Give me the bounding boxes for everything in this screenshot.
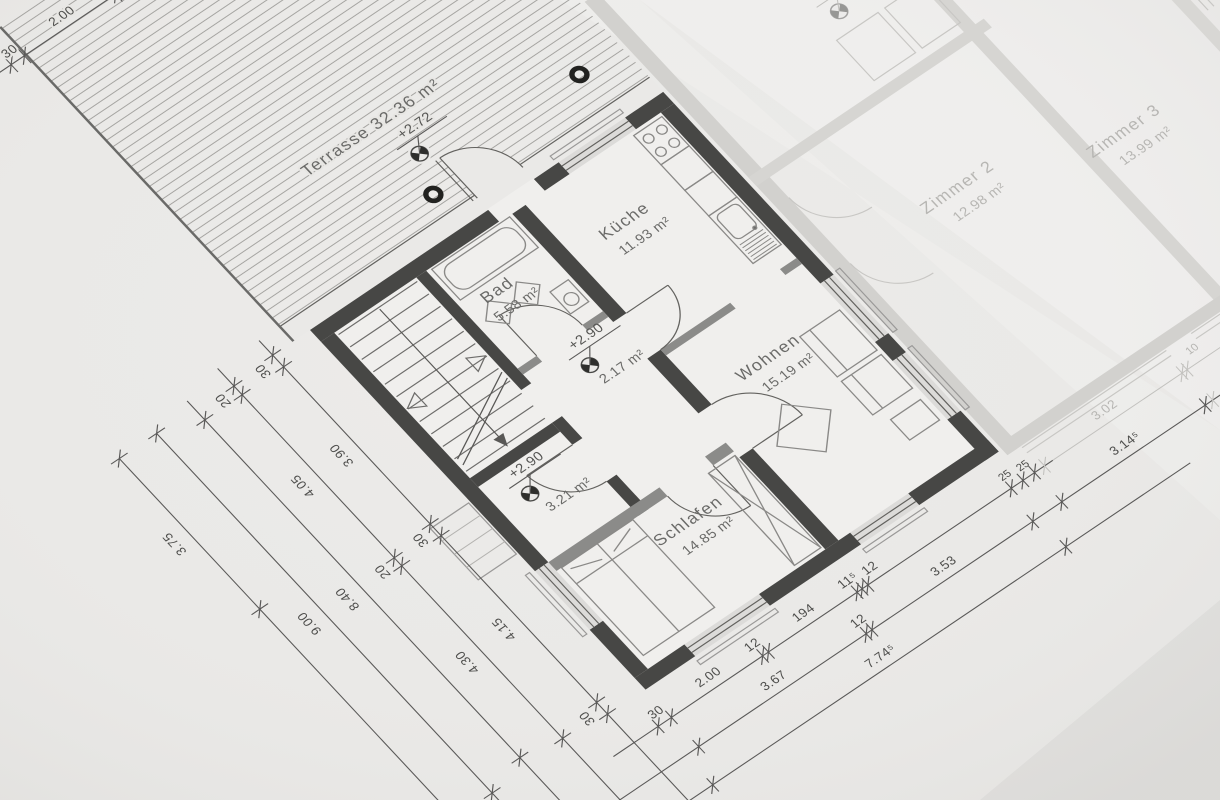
- floor-plan-photo: Zimmer 11.30 m² Zimmer 2 12.98 m² Zimmer…: [0, 0, 1220, 800]
